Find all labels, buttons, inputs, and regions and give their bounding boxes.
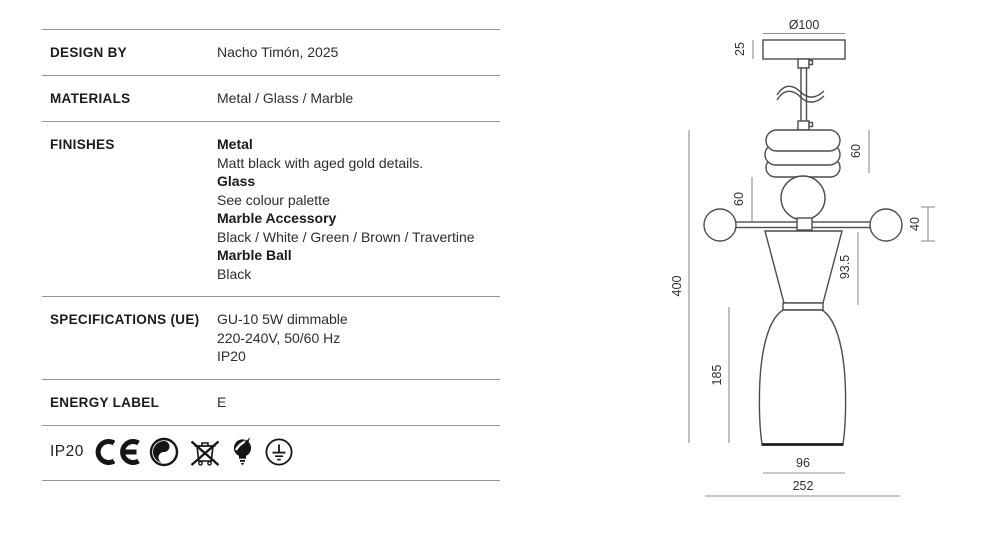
dim-cone-label: 93.5: [838, 255, 852, 279]
arm-ball-left: [704, 209, 736, 241]
ring-stack: [765, 130, 840, 177]
center-connector: [797, 218, 812, 230]
glass-sphere: [781, 176, 825, 220]
dim-total-width-label: 252: [793, 479, 814, 493]
dim-canopy-height-label: 25: [733, 42, 747, 56]
canopy-connector: [798, 59, 809, 68]
rod-connector: [798, 121, 809, 130]
canopy-connector-nub: [809, 61, 813, 65]
rod-connector-nub: [809, 123, 813, 127]
dim-canopy-diameter-label: Ø100: [789, 18, 820, 32]
dim-sphere-label: 60: [732, 192, 746, 206]
dim-shade-height-label: 185: [710, 365, 724, 386]
lamp-technical-drawing: Ø100 25 60 60 40 93.5 185 400 96 252: [0, 0, 1000, 538]
cone-shade: [765, 231, 842, 303]
bell-shade: [759, 310, 845, 444]
dim-total-height-label: 400: [670, 276, 684, 297]
arm-ball-right: [870, 209, 902, 241]
dim-arm-ball-label: 40: [908, 217, 922, 231]
dim-ring-stack-label: 60: [849, 144, 863, 158]
neck-ring: [783, 303, 823, 310]
canopy: [763, 40, 845, 59]
dim-shade-width-label: 96: [796, 456, 810, 470]
